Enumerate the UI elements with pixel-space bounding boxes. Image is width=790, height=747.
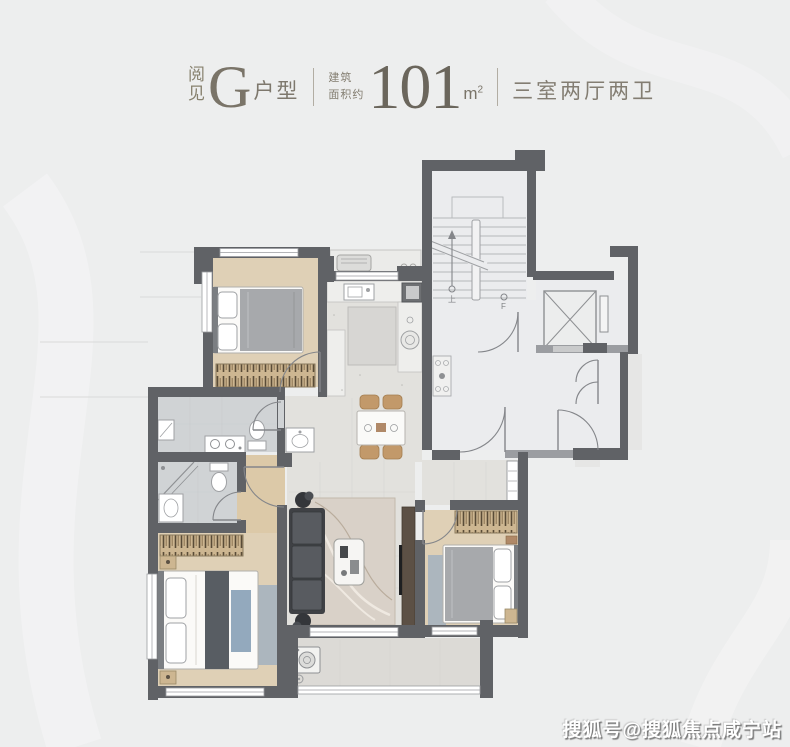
utility-niche <box>433 356 451 396</box>
plan-header: 阅 见 G 户型 建筑 面积约 101 m2 三室两厅两卫 <box>188 46 656 112</box>
room-configuration: 三室两厅两卫 <box>512 75 656 105</box>
brand-char-top: 阅 <box>188 65 206 85</box>
entry-cabinet <box>507 461 518 501</box>
elevator-level-label: F <box>501 302 506 311</box>
brand-char-bottom: 见 <box>188 84 206 104</box>
area-label-line1: 建筑 <box>328 70 364 87</box>
page: 上 F <box>0 0 790 747</box>
brand-name: 阅 见 <box>188 65 206 104</box>
area-label-line2: 面积约 <box>328 87 364 104</box>
stairs-up-label: 上 <box>448 295 456 304</box>
area-unit: m2 <box>463 84 483 104</box>
header-divider-2 <box>497 68 498 106</box>
header-divider <box>313 68 314 106</box>
unit-type-suffix: 户型 <box>253 75 299 105</box>
unit-type-letter: G <box>208 63 251 112</box>
area-unit-sup: 2 <box>478 84 484 95</box>
watermark: 搜狐号@搜狐焦点咸宁站 <box>562 715 782 742</box>
area-label: 建筑 面积约 <box>328 70 364 103</box>
common-area-floor <box>432 171 642 467</box>
bedroom1-furniture <box>213 287 315 387</box>
area-value: 101 <box>368 61 461 112</box>
